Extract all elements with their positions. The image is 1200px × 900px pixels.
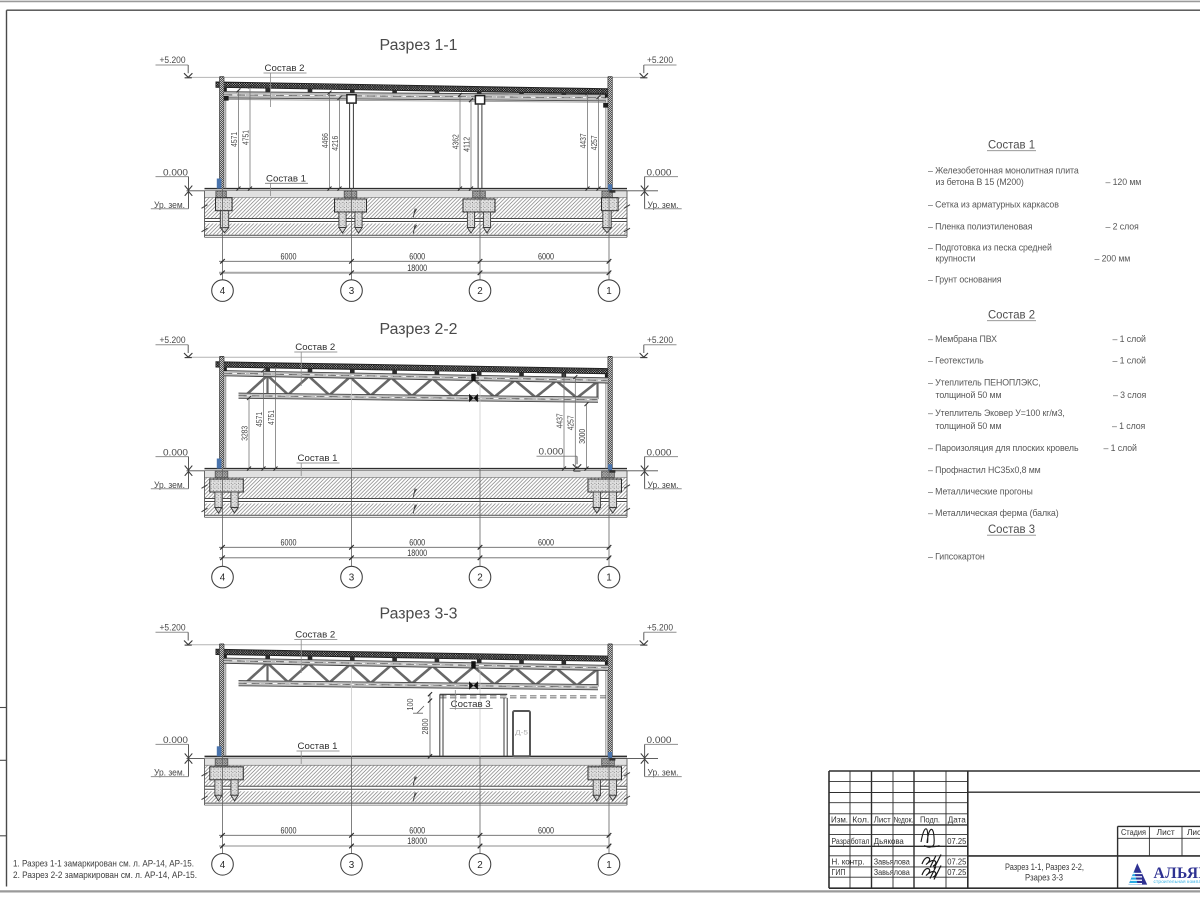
- svg-text:4437: 4437: [579, 133, 588, 148]
- svg-text:0.000: 0.000: [163, 447, 188, 457]
- svg-text:18000: 18000: [407, 548, 427, 558]
- svg-text:6000: 6000: [538, 252, 554, 262]
- svg-text:– Железобетонная монолитная п: – Железобетонная монолитная плита: [928, 166, 1079, 176]
- svg-text:Дата: Дата: [948, 815, 966, 824]
- svg-text:+5.200: +5.200: [160, 335, 186, 345]
- svg-text:18000: 18000: [407, 836, 427, 846]
- svg-text:Изм.: Изм.: [831, 815, 848, 824]
- svg-text:Состав 1: Состав 1: [298, 741, 338, 751]
- svg-text:6000: 6000: [538, 538, 554, 548]
- svg-text:0.000: 0.000: [163, 167, 188, 177]
- svg-text:ГИП: ГИП: [832, 868, 846, 877]
- svg-text:07.25: 07.25: [947, 857, 966, 866]
- svg-text:4112: 4112: [462, 137, 471, 152]
- svg-text:Состав 2: Состав 2: [988, 308, 1035, 322]
- svg-text:6000: 6000: [538, 826, 554, 836]
- svg-text:– 200 мм: – 200 мм: [1095, 254, 1131, 264]
- svg-text:+5.200: +5.200: [647, 55, 673, 65]
- svg-text:толщиной 50 мм: толщиной 50 мм: [936, 390, 1002, 400]
- svg-text:– Грунт основания: – Грунт основания: [928, 275, 1002, 285]
- svg-text:1: 1: [606, 573, 612, 584]
- svg-text:– 1 слоя: – 1 слоя: [1112, 421, 1145, 431]
- svg-text:18000: 18000: [407, 263, 427, 273]
- svg-text:Разрез 1-1, Разрез 2-2,: Разрез 1-1, Разрез 2-2,: [1005, 862, 1084, 872]
- svg-text:+5.200: +5.200: [647, 335, 673, 345]
- svg-text:4437: 4437: [555, 413, 564, 428]
- svg-text:– Утеплитель ПЕНОПЛЭКС,: – Утеплитель ПЕНОПЛЭКС,: [928, 378, 1041, 388]
- svg-text:Стадия: Стадия: [1121, 828, 1146, 837]
- svg-text:– Профнастил НС35х0,8 мм: – Профнастил НС35х0,8 мм: [928, 465, 1041, 475]
- svg-text:– Утеплитель Эковер У=100 кг/м: – Утеплитель Эковер У=100 кг/м3,: [928, 408, 1065, 418]
- svg-text:– 1 слой: – 1 слой: [1113, 334, 1146, 344]
- svg-text:– Геотекстиль: – Геотекстиль: [928, 356, 984, 366]
- svg-text:строительная компания: строительная компания: [1154, 879, 1200, 884]
- svg-text:2: 2: [477, 286, 483, 297]
- svg-text:2: 2: [477, 860, 483, 871]
- svg-text:Разрез 1-1: Разрез 1-1: [380, 37, 458, 54]
- svg-text:+5.200: +5.200: [647, 623, 673, 633]
- svg-text:– 1 слой: – 1 слой: [1113, 356, 1146, 366]
- svg-text:Дьякова: Дьякова: [874, 837, 904, 846]
- svg-text:4751: 4751: [267, 410, 276, 425]
- svg-text:– Сетка из арматурных каркасов: – Сетка из арматурных каркасов: [928, 200, 1059, 210]
- svg-text:– 3 слоя: – 3 слоя: [1113, 390, 1146, 400]
- svg-text:– Пленка полиэтиленовая: – Пленка полиэтиленовая: [928, 222, 1033, 232]
- svg-text:3: 3: [349, 286, 355, 297]
- svg-text:6000: 6000: [409, 252, 425, 262]
- svg-text:№док.: №док.: [894, 815, 914, 824]
- svg-text:0.000: 0.000: [647, 167, 672, 177]
- svg-text:0.000: 0.000: [647, 735, 672, 745]
- svg-text:– 1 слой: – 1 слой: [1104, 443, 1137, 453]
- svg-text:1. Разрез 1-1 замаркирован см.: 1. Разрез 1-1 замаркирован см. л. АР-14,…: [13, 858, 194, 868]
- svg-text:Завьялова: Завьялова: [874, 868, 910, 877]
- svg-text:Подп.: Подп.: [920, 815, 940, 824]
- svg-text:100: 100: [406, 698, 415, 711]
- svg-text:4466: 4466: [321, 133, 330, 148]
- svg-text:0.000: 0.000: [539, 447, 564, 457]
- svg-text:Рзарез 3-3: Рзарез 3-3: [1025, 872, 1063, 882]
- svg-text:1: 1: [606, 286, 612, 297]
- svg-text:+5.200: +5.200: [160, 623, 186, 633]
- svg-text:1: 1: [606, 860, 612, 871]
- svg-text:6000: 6000: [281, 826, 297, 836]
- svg-text:Состав 1: Состав 1: [266, 174, 306, 184]
- svg-text:4: 4: [220, 286, 226, 297]
- svg-text:4: 4: [220, 860, 226, 871]
- svg-text:Лист: Лист: [1187, 828, 1200, 837]
- svg-text:Состав 3: Состав 3: [451, 699, 491, 709]
- svg-text:Разработал: Разработал: [832, 837, 870, 846]
- svg-text:4216: 4216: [331, 136, 340, 151]
- svg-text:4751: 4751: [241, 130, 250, 145]
- svg-text:из бетона В 15 (М200): из бетона В 15 (М200): [936, 177, 1024, 187]
- svg-text:Состав 2: Состав 2: [295, 630, 335, 640]
- svg-text:4257: 4257: [590, 135, 599, 150]
- svg-text:Лист: Лист: [874, 815, 891, 824]
- svg-text:3283: 3283: [240, 426, 249, 441]
- svg-text:6000: 6000: [281, 252, 297, 262]
- svg-text:4: 4: [220, 573, 226, 584]
- svg-text:2: 2: [477, 573, 483, 584]
- svg-text:толщиной 50 мм: толщиной 50 мм: [936, 421, 1002, 431]
- svg-text:0.000: 0.000: [163, 735, 188, 745]
- svg-text:2. Разрез 2-2 замаркирован см.: 2. Разрез 2-2 замаркирован см. л. АР-14,…: [13, 870, 197, 880]
- svg-text:– Мембрана ПВХ: – Мембрана ПВХ: [928, 334, 997, 344]
- svg-text:3000: 3000: [578, 428, 587, 444]
- svg-text:4362: 4362: [451, 134, 460, 149]
- svg-text:– Металлические прогоны: – Металлические прогоны: [928, 487, 1033, 497]
- svg-text:4571: 4571: [230, 132, 239, 147]
- svg-text:0.000: 0.000: [647, 447, 672, 457]
- svg-text:– Пароизоляция для плоских кро: – Пароизоляция для плоских кровель: [928, 443, 1079, 453]
- svg-text:– Подготовка из песка средней: – Подготовка из песка средней: [928, 243, 1052, 253]
- svg-text:– 120 мм: – 120 мм: [1106, 177, 1142, 187]
- svg-text:Д-5: Д-5: [515, 730, 528, 737]
- svg-text:6000: 6000: [281, 538, 297, 548]
- svg-text:– Гипсокартон: – Гипсокартон: [928, 552, 985, 562]
- svg-text:Лист: Лист: [1157, 828, 1175, 837]
- svg-text:Разрез 2-2: Разрез 2-2: [380, 321, 458, 338]
- svg-text:3: 3: [349, 573, 355, 584]
- svg-text:Состав 1: Состав 1: [298, 453, 338, 463]
- svg-text:Состав 3: Состав 3: [988, 522, 1035, 536]
- svg-text:6000: 6000: [409, 538, 425, 548]
- svg-text:2800: 2800: [421, 718, 430, 735]
- svg-text:4257: 4257: [567, 415, 576, 430]
- svg-text:Состав 2: Состав 2: [295, 342, 335, 352]
- svg-text:Состав 2: Состав 2: [265, 63, 305, 73]
- svg-text:07.25: 07.25: [947, 868, 966, 877]
- svg-text:крупности: крупности: [936, 254, 976, 264]
- svg-text:6000: 6000: [409, 826, 425, 836]
- svg-text:Завьялова: Завьялова: [874, 857, 910, 866]
- svg-text:Н. контр.: Н. контр.: [832, 857, 865, 866]
- svg-text:– Металлическая ферма (балка): – Металлическая ферма (балка): [928, 508, 1059, 518]
- svg-text:4571: 4571: [255, 412, 264, 427]
- svg-text:+5.200: +5.200: [160, 55, 186, 65]
- svg-text:Кол.: Кол.: [852, 815, 869, 824]
- svg-text:07.25: 07.25: [947, 837, 966, 846]
- svg-text:Разрез 3-3: Разрез 3-3: [380, 606, 458, 623]
- svg-text:3: 3: [349, 860, 355, 871]
- svg-text:Состав 1: Состав 1: [988, 138, 1035, 152]
- svg-text:– 2 слоя: – 2 слоя: [1106, 222, 1139, 232]
